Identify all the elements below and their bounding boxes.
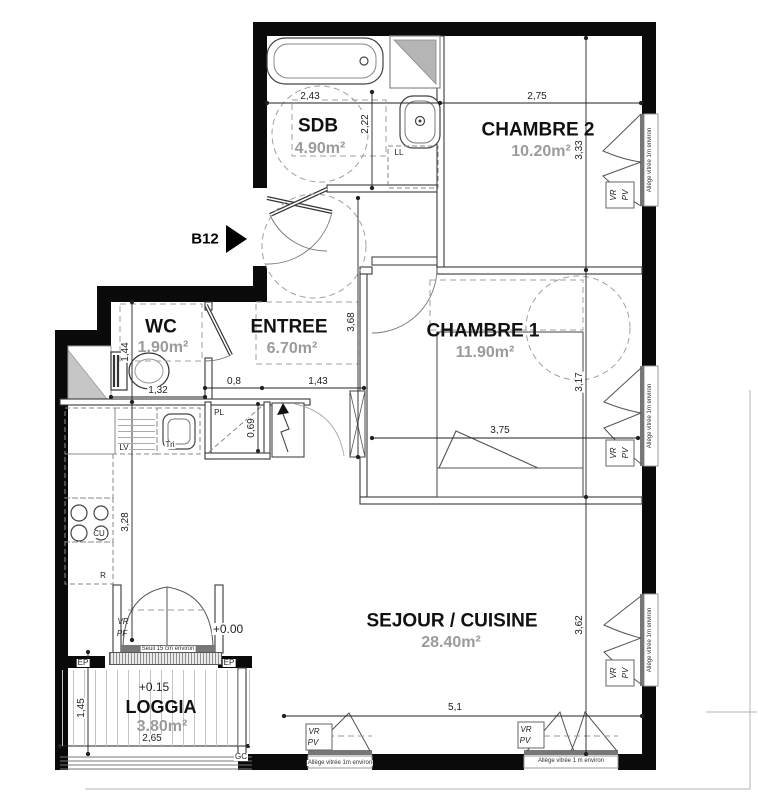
dim-ch2-width: 2,75 xyxy=(526,92,547,102)
hob-icon xyxy=(65,498,113,542)
dim-hall-width: 1,43 xyxy=(307,377,328,387)
ch2-window-shutter-label: VR xyxy=(610,188,618,201)
sejour-window-type-label: PV xyxy=(622,667,630,680)
room-label-entree: ENTREE xyxy=(249,318,328,337)
sink-label: Tri xyxy=(164,441,175,449)
sejour-window-sill-note: Allège vitrée 1m environ xyxy=(647,607,653,673)
dim-pl-depth: 0,69 xyxy=(247,417,257,438)
dim-wc-width: 1,32 xyxy=(147,386,168,396)
dim-entree-depth: 3,68 xyxy=(347,311,357,332)
room-area-entree: 6.70m² xyxy=(266,341,319,357)
ch2-window-sill-note: Allège vitrée 1m environ xyxy=(647,127,653,193)
washing-machine-label: LL xyxy=(394,149,405,157)
dim-ch1-width: 3,75 xyxy=(489,426,510,436)
bottom-window2-sill-note: Allège vitrée 1 m environ xyxy=(537,758,605,764)
room-label-wc: WC xyxy=(144,318,178,337)
ch2-window-type-label: PV xyxy=(622,189,630,202)
dim-sejour-width: 5,1 xyxy=(447,703,463,713)
dim-sdb-width: 2,43 xyxy=(299,92,320,102)
dim-wc-depth: 1,44 xyxy=(121,341,131,362)
room-area-sejour: 28.40m² xyxy=(420,635,482,651)
dim-pl-width: 0,8 xyxy=(226,377,242,387)
threshold-note: Seuil 15 cm environ xyxy=(141,646,196,652)
bottom-window1-sill-note: Allège vitrée 1m environ xyxy=(307,760,373,766)
loggia-level: +0.15 xyxy=(138,681,170,693)
room-label-sejour: SEJOUR / CUISINE xyxy=(365,612,538,631)
bottom-window1-shutter-label: VR xyxy=(307,728,320,736)
ch1-window-sill-note: Allège vitrée 1m environ xyxy=(647,383,653,449)
bottom-window2-type-label: PV xyxy=(519,737,532,745)
room-area-wc: 1.90m² xyxy=(137,340,190,356)
dim-sejour-depth: 3,62 xyxy=(575,614,585,635)
interior-level: +0.00 xyxy=(212,623,244,635)
fridge-label: R xyxy=(99,572,107,580)
rainwater-label-right: EP xyxy=(223,659,236,667)
bottom-window2-shutter-label: VR xyxy=(519,726,532,734)
dishwasher-label: LV xyxy=(118,444,129,452)
loggia-edge xyxy=(60,757,252,769)
dim-sdb-depth: 2,22 xyxy=(361,113,371,134)
gc-label: GC xyxy=(234,753,248,761)
technical-cabinet xyxy=(272,403,304,457)
threshold-hatch xyxy=(109,652,222,665)
unit-label: B12 xyxy=(190,232,220,247)
dim-loggia-width: 2,65 xyxy=(141,734,162,744)
dim-kitchen-depth: 3,28 xyxy=(121,511,131,532)
sejour-window-shutter-label: VR xyxy=(610,666,618,679)
ch1-window-type-label: PV xyxy=(622,447,630,460)
room-area-chambre2: 10.20m² xyxy=(510,144,572,160)
room-label-sdb: SDB xyxy=(297,117,339,136)
dim-ch2-depth: 3,33 xyxy=(575,139,585,160)
room-area-sdb: 4.90m² xyxy=(294,141,347,157)
floor-plan: B12 SDB 4.90m² CHAMBRE 2 10.20m² WC 1.90… xyxy=(0,0,758,800)
hatched-duct-zone xyxy=(68,346,111,399)
room-label-chambre1: CHAMBRE 1 xyxy=(426,322,541,341)
entrance-arrow-icon xyxy=(226,225,247,253)
room-label-loggia: LOGGIA xyxy=(125,698,198,716)
loggia-door-shutter-label: VR xyxy=(116,618,129,626)
room-area-chambre1: 11.90m² xyxy=(455,345,516,361)
bottom-window1-type-label: PV xyxy=(307,739,320,747)
hob-label: CU xyxy=(92,530,106,538)
closet-label: PL xyxy=(213,409,225,417)
room-label-chambre2: CHAMBRE 2 xyxy=(481,121,596,140)
dim-loggia-depth: 1,45 xyxy=(77,697,87,718)
rainwater-label-left: EP xyxy=(77,659,90,667)
ch1-window-shutter-label: VR xyxy=(610,446,618,459)
dim-ch1-depth: 3,17 xyxy=(575,371,585,392)
loggia-door-type-label: PF xyxy=(116,630,128,638)
